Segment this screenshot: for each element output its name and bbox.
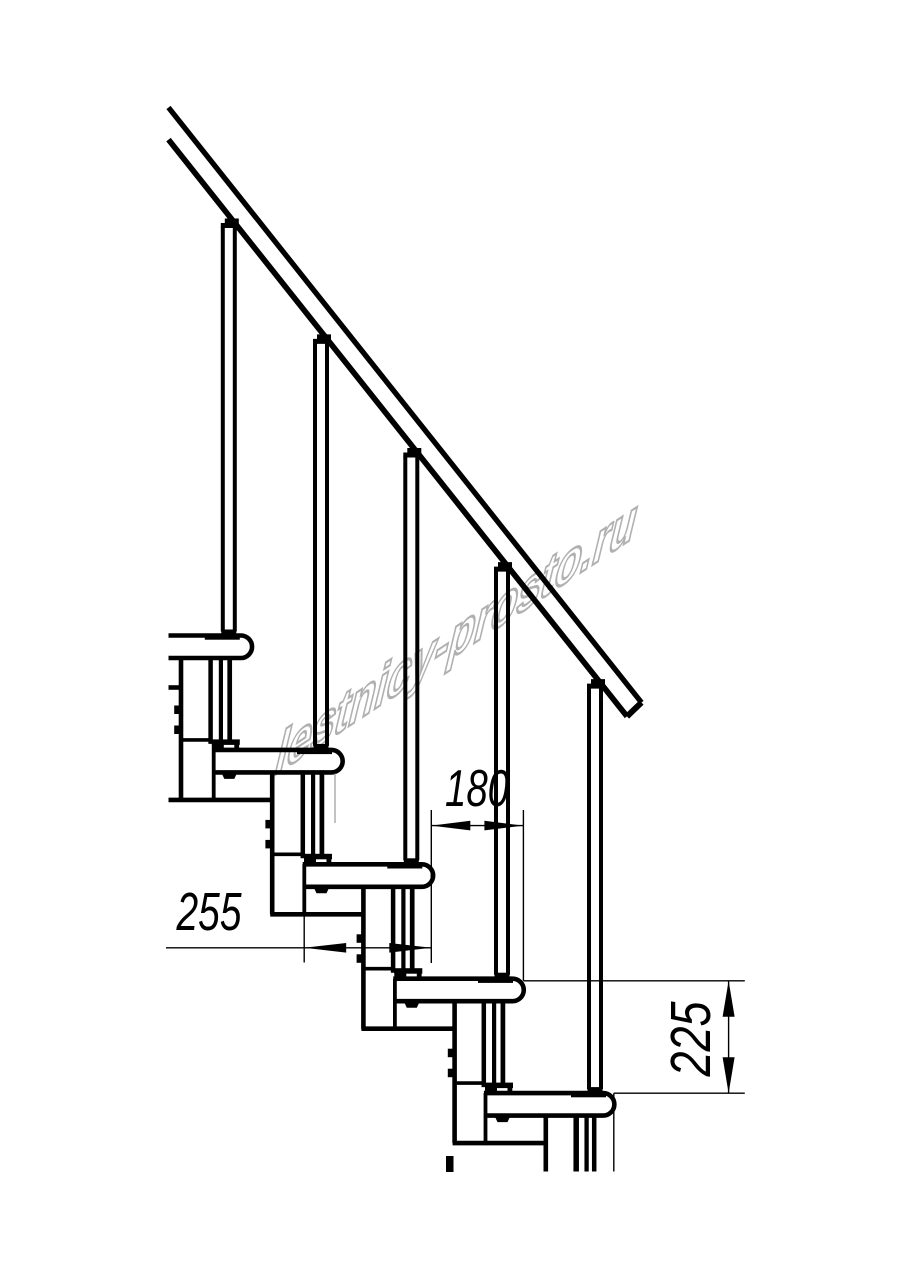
svg-text:180: 180 <box>445 760 509 818</box>
svg-text:225: 225 <box>659 1001 723 1077</box>
svg-text:255: 255 <box>176 882 242 942</box>
